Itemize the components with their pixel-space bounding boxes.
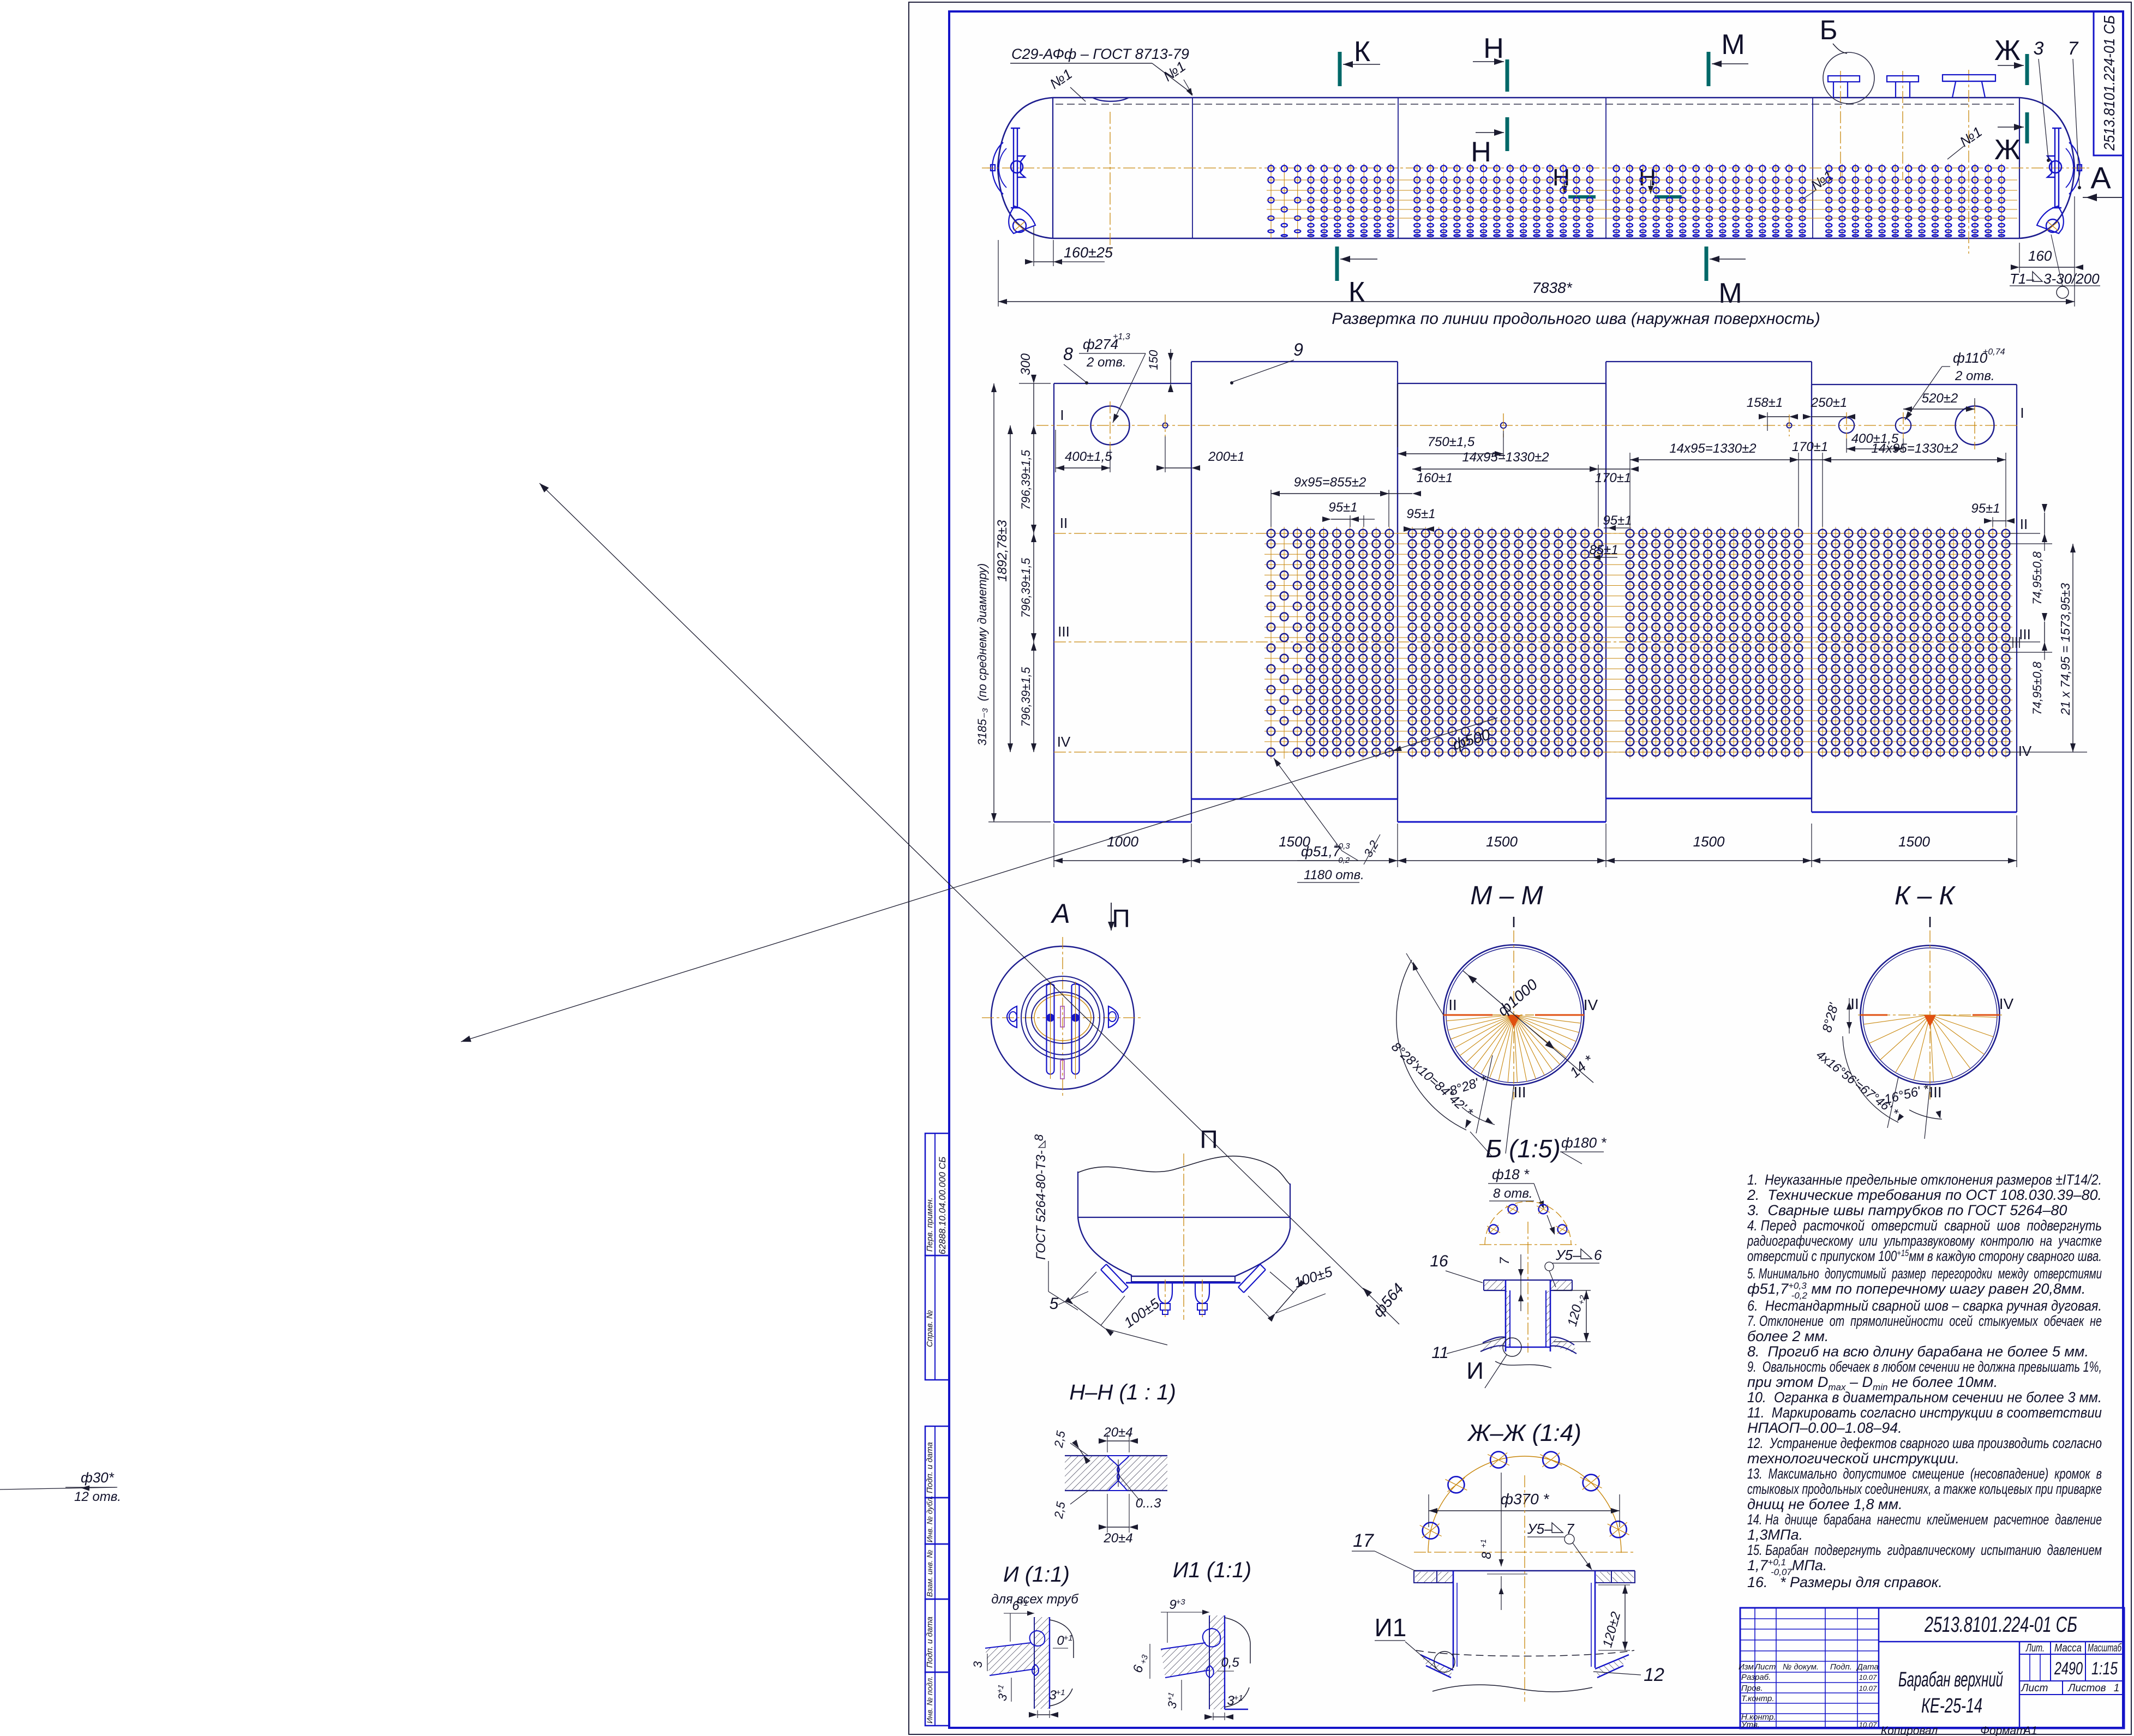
svg-text:7: 7 (2068, 38, 2079, 59)
svg-text:Инв. № подл.: Инв. № подл. (925, 1676, 934, 1723)
svg-text:И (1:1): И (1:1) (1003, 1563, 1070, 1587)
svg-text:8: 8 (1479, 1552, 1494, 1559)
svg-text:2513.8101.224-01 СБ: 2513.8101.224-01 СБ (1924, 1613, 2077, 1637)
svg-text:Ж–Ж (1:4): Ж–Ж (1:4) (1467, 1420, 1581, 1446)
svg-text:16. * Размеры для справок.: 16. * Размеры для справок. (1747, 1574, 1943, 1590)
svg-text:1. Неуказанные предельные отк: 1. Неуказанные предельные отклонения раз… (1747, 1172, 2102, 1188)
svg-text:М: М (1718, 278, 1742, 309)
svg-text:И1: И1 (1375, 1613, 1407, 1642)
svg-text:Пров.: Пров. (1741, 1684, 1763, 1693)
svg-text:750±1,5: 750±1,5 (1428, 435, 1475, 449)
svg-text:IV: IV (2018, 743, 2032, 759)
svg-text:1: 1 (2114, 1683, 2120, 1694)
svg-text:14х95=1330±2: 14х95=1330±2 (1462, 450, 1549, 465)
svg-text:796,39±1,5: 796,39±1,5 (1019, 449, 1033, 510)
svg-text:Т.контр.: Т.контр. (1741, 1694, 1775, 1703)
svg-text:95±1: 95±1 (1328, 500, 1357, 515)
svg-text:1500: 1500 (1279, 833, 1310, 850)
svg-text:13. Максимально допустимое: 13. Максимально допустимое смещение (нес… (1747, 1465, 2102, 1482)
svg-text:Развертка по линии продольного: Развертка по линии продольного шва (нару… (1332, 310, 1820, 328)
svg-text:технологической инструкции.: технологической инструкции. (1747, 1450, 1959, 1467)
svg-text:8. Прогиб на всю длину бараба: 8. Прогиб на всю длину барабана не более… (1747, 1343, 2089, 1360)
svg-text:95±1: 95±1 (1603, 513, 1632, 528)
svg-text:Подп. и дата: Подп. и дата (925, 1442, 934, 1493)
svg-text:796,39±1,5: 796,39±1,5 (1019, 666, 1033, 727)
svg-text:ГОСТ 5264-80-Т3-: ГОСТ 5264-80-Т3- (1034, 1150, 1048, 1260)
svg-text:14х95=1330±2: 14х95=1330±2 (1669, 441, 1756, 456)
svg-text:10.07: 10.07 (1859, 1684, 1877, 1692)
svg-text:10.07: 10.07 (1859, 1721, 1877, 1729)
svg-text:Н: Н (1483, 33, 1504, 64)
svg-text:I: I (2020, 405, 2024, 421)
svg-text:II: II (1448, 996, 1457, 1013)
svg-text:II: II (1060, 515, 1068, 531)
svg-text:Формат: Формат (1980, 1725, 2025, 1736)
svg-text:3: 3 (971, 1661, 985, 1668)
svg-text:8: 8 (1032, 1134, 1046, 1141)
svg-text:У5–: У5– (1555, 1247, 1581, 1263)
svg-text:I: I (1060, 407, 1064, 423)
svg-text:Копировал: Копировал (1881, 1725, 1938, 1736)
svg-text:3: 3 (2034, 38, 2044, 59)
svg-text:12 отв.: 12 отв. (74, 1489, 121, 1504)
svg-text:II: II (2020, 516, 2028, 532)
svg-text:для всех труб: для всех труб (991, 1592, 1079, 1607)
svg-text:12. Устранение дефектов сварн: 12. Устранение дефектов сварного шва про… (1747, 1435, 2102, 1451)
svg-text:170±1: 170±1 (1792, 440, 1829, 454)
svg-text:62888.10.04.00.000 СБ: 62888.10.04.00.000 СБ (937, 1157, 948, 1254)
svg-text:+0,74: +0,74 (1983, 347, 2005, 357)
svg-text:10.07: 10.07 (1859, 1673, 1877, 1681)
svg-text:11. Маркировать согласно инст: 11. Маркировать согласно инструкции в со… (1747, 1404, 2102, 1421)
svg-text:11: 11 (1431, 1344, 1448, 1362)
svg-text:95±1: 95±1 (1971, 501, 2000, 516)
svg-text:У5–: У5– (1527, 1521, 1552, 1537)
svg-text:6. Нестандартный сварной шов: 6. Нестандартный сварной шов – сварка ру… (1747, 1298, 2102, 1314)
svg-text:IV: IV (1999, 995, 2014, 1012)
svg-text:К – К: К – К (1895, 881, 1956, 910)
svg-text:Изм.: Изм. (1739, 1662, 1756, 1672)
svg-text:И: И (1466, 1357, 1484, 1384)
svg-text:160±25: 160±25 (1064, 244, 1113, 261)
svg-text:170±1: 170±1 (1595, 471, 1632, 485)
svg-text:Взам. инв. №: Взам. инв. № (925, 1549, 934, 1597)
svg-text:400±1,5: 400±1,5 (1851, 431, 1899, 446)
svg-text:Листов: Листов (2067, 1683, 2106, 1694)
svg-text:+3: +3 (1176, 1597, 1185, 1607)
svg-text:9х95=855±2: 9х95=855±2 (1294, 475, 1366, 490)
svg-text:Утв.: Утв. (1741, 1720, 1760, 1729)
svg-text:ф18 *: ф18 * (1492, 1166, 1530, 1182)
svg-text:3185₋₃ (по среднему диаметру): 3185₋₃ (по среднему диаметру) (975, 563, 989, 746)
svg-text:160: 160 (2028, 248, 2052, 264)
svg-text:158±1: 158±1 (1747, 395, 1783, 410)
svg-text:200±1: 200±1 (1208, 449, 1245, 464)
svg-text:95±1: 95±1 (1406, 507, 1435, 521)
svg-text:III: III (1513, 1084, 1526, 1101)
svg-text:6: 6 (1594, 1247, 1602, 1263)
svg-text:150: 150 (1147, 350, 1160, 370)
svg-text:Масса: Масса (2054, 1642, 2082, 1654)
svg-text:Лист: Лист (2021, 1683, 2048, 1694)
svg-text:1892,78±3: 1892,78±3 (995, 520, 1010, 582)
svg-text:Ж: Ж (1994, 35, 2021, 67)
svg-text:Дата: Дата (1856, 1662, 1879, 1672)
svg-text:более 2 мм.: более 2 мм. (1747, 1328, 1829, 1344)
svg-text:+1: +1 (1056, 1688, 1065, 1697)
svg-text:2. Технические требования по: 2. Технические требования по ОСТ 108.030… (1747, 1187, 2102, 1203)
svg-text:+1: +1 (1063, 1633, 1072, 1643)
svg-text:17: 17 (1353, 1530, 1374, 1551)
svg-text:1500: 1500 (1486, 833, 1518, 850)
svg-text:7838*: 7838* (1532, 279, 1572, 296)
svg-text:II: II (1850, 995, 1859, 1012)
svg-text:Подп.: Подп. (1830, 1662, 1852, 1672)
svg-text:III: III (1058, 623, 1070, 640)
svg-text:2 отв.: 2 отв. (1955, 369, 1995, 383)
svg-text:Перв. примен.: Перв. примен. (925, 1197, 934, 1252)
svg-text:4. Перед расточкой отверстий: 4. Перед расточкой отверстий сварной шов… (1747, 1217, 2102, 1234)
svg-text:КЕ-25-14: КЕ-25-14 (1921, 1695, 1982, 1717)
svg-text:10. Огранка в диаметральном с: 10. Огранка в диаметральном сечении не б… (1747, 1389, 2102, 1405)
svg-text:1500: 1500 (1898, 833, 1930, 850)
svg-text:Справ. №: Справ. № (925, 1310, 934, 1347)
svg-text:Барабан верхний: Барабан верхний (1898, 1668, 2003, 1691)
svg-text:1,3МПа.: 1,3МПа. (1747, 1527, 1803, 1543)
svg-text:III: III (2019, 626, 2031, 642)
svg-text:IV: IV (1057, 734, 1071, 750)
svg-text:И1 (1:1): И1 (1:1) (1173, 1558, 1251, 1582)
svg-text:520±2: 520±2 (1922, 391, 1958, 406)
svg-text:9: 9 (1293, 340, 1303, 359)
svg-text:8 отв.: 8 отв. (1493, 1186, 1533, 1201)
svg-text:9. Овальность обечаек в любом: 9. Овальность обечаек в любом сечении не… (1747, 1359, 2102, 1375)
svg-text:Т1–: Т1– (2010, 271, 2034, 287)
svg-text:+1: +1 (1479, 1539, 1488, 1548)
svg-text:Б (1:5): Б (1:5) (1485, 1134, 1560, 1163)
svg-text:стыковых продольных соединения: стыковых продольных соединениях, а также… (1747, 1481, 2102, 1497)
svg-text:ф30*: ф30* (81, 1469, 115, 1486)
svg-text:74,95±0,8: 74,95±0,8 (2030, 661, 2044, 714)
svg-text:7: 7 (1497, 1257, 1512, 1265)
svg-text:Н: Н (1471, 136, 1491, 168)
svg-text:Разраб.: Разраб. (1741, 1673, 1771, 1682)
svg-text:ф180 *: ф180 * (1561, 1134, 1607, 1151)
svg-text:5: 5 (1050, 1295, 1059, 1313)
svg-text:I: I (1512, 914, 1516, 930)
svg-text:Масштаб: Масштаб (2088, 1642, 2121, 1654)
svg-text:А1: А1 (2022, 1725, 2037, 1736)
svg-text:3. Сварные швы патрубков по Г: 3. Сварные швы патрубков по ГОСТ 5264–80 (1747, 1202, 2067, 1218)
svg-text:12: 12 (1644, 1665, 1664, 1685)
svg-text:7. Отклонение от прямолинейн: 7. Отклонение от прямолинейности осей ст… (1747, 1313, 2102, 1329)
svg-text:А: А (1050, 898, 1070, 929)
svg-text:20±4: 20±4 (1103, 1531, 1132, 1546)
svg-text:160±1: 160±1 (1417, 471, 1453, 485)
svg-text:14. На днище барабана нанес: 14. На днище барабана нанести клеймением… (1747, 1511, 2102, 1528)
svg-text:+1: +1 (1233, 1693, 1243, 1703)
svg-text:+1,3: +1,3 (1113, 332, 1130, 341)
svg-text:1:15: 1:15 (2091, 1659, 2118, 1678)
svg-text:днищ не более 1,8 мм.: днищ не более 1,8 мм. (1747, 1496, 1903, 1512)
svg-text:0,5: 0,5 (1221, 1655, 1239, 1670)
svg-text:Инв. № дубл.: Инв. № дубл. (925, 1495, 934, 1542)
svg-text:радиографическому или ультра: радиографическому или ультразвуковому ко… (1747, 1233, 2102, 1249)
svg-text:П: П (1112, 904, 1130, 933)
svg-text:2 отв.: 2 отв. (1086, 355, 1126, 370)
svg-text:I: I (1928, 914, 1932, 930)
svg-text:А: А (2090, 160, 2111, 195)
svg-text:Лит.: Лит. (2025, 1642, 2045, 1654)
svg-text:2513.8101.224-01 СБ: 2513.8101.224-01 СБ (2101, 15, 2118, 151)
svg-text:300: 300 (1018, 353, 1033, 375)
svg-text:М: М (1721, 29, 1745, 61)
svg-text:Лист: Лист (1754, 1662, 1776, 1672)
svg-text:0...3: 0...3 (1136, 1496, 1161, 1511)
svg-text:III: III (1929, 1084, 1941, 1101)
svg-text:IV: IV (1584, 996, 1598, 1013)
svg-text:5. Минимально допустимый раз: 5. Минимально допустимый размер перегоро… (1747, 1265, 2102, 1282)
svg-text:2490: 2490 (2054, 1659, 2083, 1678)
svg-text:Н–Н (1 : 1): Н–Н (1 : 1) (1069, 1380, 1176, 1404)
svg-text:Подп. и дата: Подп. и дата (925, 1617, 934, 1668)
svg-text:85±1: 85±1 (1589, 543, 1618, 557)
svg-text:21 х 74,95 = 1573,95±3: 21 х 74,95 = 1573,95±3 (2058, 583, 2072, 716)
svg-text:№ докум.: № докум. (1783, 1662, 1819, 1672)
svg-text:1000: 1000 (1107, 833, 1138, 850)
svg-text:796,39±1,5: 796,39±1,5 (1019, 557, 1033, 618)
svg-text:К: К (1354, 36, 1370, 68)
svg-text:74,95±0,8: 74,95±0,8 (2030, 551, 2044, 604)
svg-text:1180 отв.: 1180 отв. (1304, 868, 1364, 882)
svg-text:1500: 1500 (1693, 833, 1725, 850)
svg-text:М – М: М – М (1470, 881, 1543, 910)
svg-text:250±1: 250±1 (1811, 395, 1848, 410)
svg-text:+1: +1 (1018, 1599, 1028, 1608)
svg-text:15. Барабан подвергнуть гидр: 15. Барабан подвергнуть гидравлическому … (1747, 1542, 2102, 1558)
svg-text:16: 16 (1430, 1252, 1448, 1270)
svg-text:отверстий с припуском 100+15мм: отверстий с припуском 100+15мм в каждую … (1747, 1248, 2102, 1264)
svg-text:20±4: 20±4 (1103, 1425, 1132, 1440)
svg-text:Б: Б (1820, 15, 1838, 45)
svg-text:НПАОП–0.00–1.08–94.: НПАОП–0.00–1.08–94. (1747, 1420, 1902, 1436)
svg-text:К: К (1348, 277, 1365, 308)
svg-text:П: П (1200, 1125, 1218, 1154)
svg-text:Ж: Ж (1994, 134, 2021, 166)
svg-text:400±1,5: 400±1,5 (1065, 449, 1112, 464)
svg-text:С29-АФф – ГОСТ 8713-79: С29-АФф – ГОСТ 8713-79 (1011, 46, 1189, 62)
svg-text:8: 8 (1063, 344, 1073, 364)
svg-text:3-30/200: 3-30/200 (2043, 271, 2100, 287)
